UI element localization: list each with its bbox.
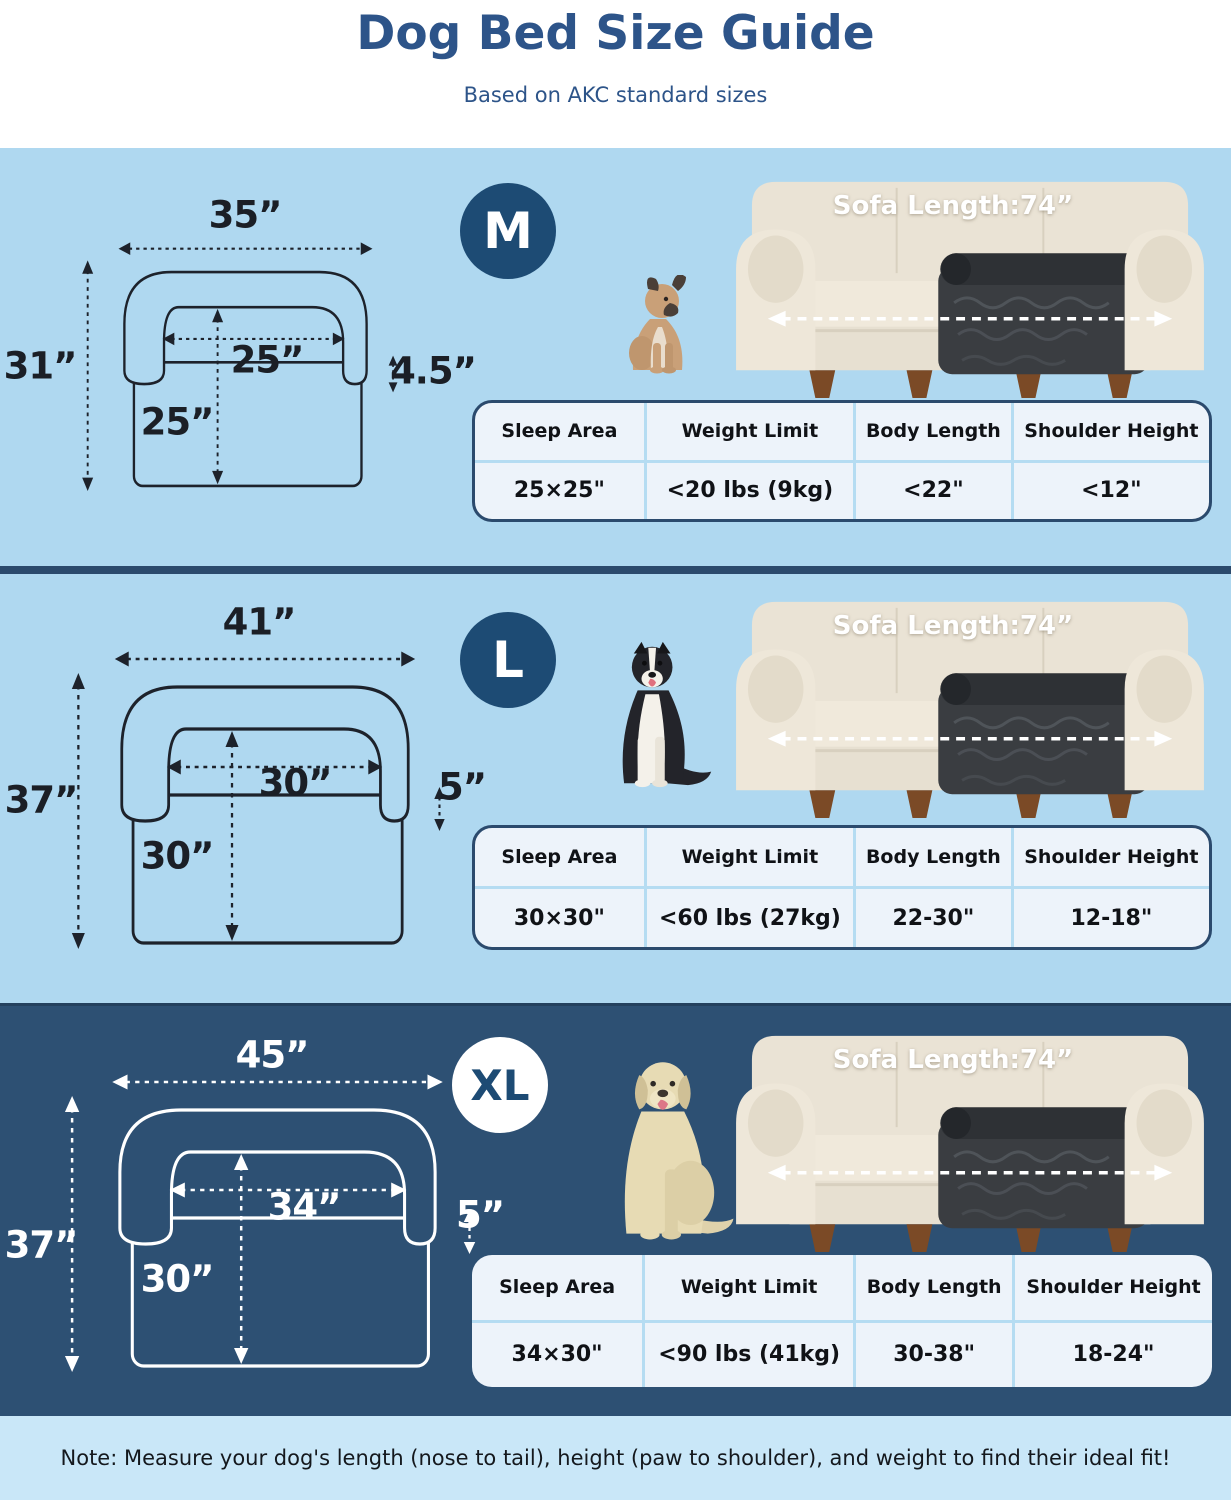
col-header-sleep-area: Sleep Area [472, 1255, 642, 1320]
col-header-sleep-area: Sleep Area [475, 828, 644, 886]
sofa-illustration-xl: Sofa Length:74” [712, 1028, 1228, 1254]
shoulder-height-value: 18-24" [1012, 1323, 1212, 1388]
dim-inner-width-label: 25” [231, 339, 304, 382]
spec-table-l: Sleep Area Weight Limit Body Length Shou… [472, 825, 1212, 950]
col-header-weight-limit: Weight Limit [644, 403, 853, 460]
dim-inner-width-label: 34” [268, 1186, 341, 1229]
dim-width-label: 45” [236, 1034, 309, 1077]
dim-height-label: 37” [5, 1224, 78, 1267]
page-title: Dog Bed Size Guide [0, 6, 1231, 61]
page-subtitle: Based on AKC standard sizes [0, 83, 1231, 107]
dim-bolster-height-label: 5” [438, 766, 486, 809]
sofa-length-label: Sofa Length:74” [833, 611, 1073, 641]
spec-table-header-row: Sleep Area Weight Limit Body Length Shou… [472, 1255, 1212, 1320]
dim-height-label: 31” [4, 345, 77, 388]
size-badge-m: M [460, 183, 556, 279]
col-header-sleep-area: Sleep Area [475, 403, 644, 460]
size-badge-l: L [460, 612, 556, 708]
measurement-note: Note: Measure your dog's length (nose to… [61, 1446, 1171, 1470]
sofa-length-label: Sofa Length:74” [833, 1045, 1073, 1075]
sofa-illustration-m: Sofa Length:74” [712, 174, 1228, 400]
weight-limit-value: <60 lbs (27kg) [644, 889, 853, 947]
spec-table-header-row: Sleep Area Weight Limit Body Length Shou… [475, 403, 1209, 460]
dog-bed-size-guide-infographic: Dog Bed Size Guide Based on AKC standard… [0, 0, 1231, 1500]
section-size-xl: 45” 37” 34” 30” 5” XL [0, 1003, 1231, 1416]
col-header-weight-limit: Weight Limit [642, 1255, 853, 1320]
spec-table-header-row: Sleep Area Weight Limit Body Length Shou… [475, 828, 1209, 886]
dim-inner-width-label: 30” [259, 762, 332, 805]
size-badge-xl: XL [452, 1037, 548, 1133]
dim-height-label: 37” [5, 779, 78, 822]
col-header-body-length: Body Length [853, 403, 1011, 460]
weight-limit-value: <20 lbs (9kg) [644, 463, 853, 520]
col-header-body-length: Body Length [853, 1255, 1012, 1320]
sleep-area-value: 30×30" [475, 889, 644, 947]
header: Dog Bed Size Guide Based on AKC standard… [0, 0, 1231, 148]
dim-inner-height-label: 30” [141, 1258, 214, 1301]
body-length-value: <22" [853, 463, 1011, 520]
col-header-weight-limit: Weight Limit [644, 828, 853, 886]
col-header-shoulder-height: Shoulder Height [1011, 828, 1209, 886]
body-length-value: 22-30" [853, 889, 1011, 947]
section-divider [0, 566, 1231, 574]
size-badge-label: M [483, 202, 533, 260]
spec-table-value-row: 25×25" <20 lbs (9kg) <22" <12" [475, 460, 1209, 520]
dim-bolster-height-label: 5” [456, 1194, 504, 1237]
spec-table-xl: Sleep Area Weight Limit Body Length Shou… [472, 1255, 1212, 1387]
footer: Note: Measure your dog's length (nose to… [0, 1416, 1231, 1500]
dim-inner-height-label: 25” [141, 401, 214, 444]
dim-width-label: 35” [209, 194, 282, 237]
sleep-area-value: 25×25" [475, 463, 644, 520]
dog-illustration-french-bulldog [620, 275, 700, 375]
col-header-shoulder-height: Shoulder Height [1011, 403, 1209, 460]
sofa-length-label: Sofa Length:74” [833, 191, 1073, 221]
dim-width-label: 41” [223, 601, 296, 644]
size-badge-label: XL [470, 1061, 529, 1110]
spec-table-m: Sleep Area Weight Limit Body Length Shou… [472, 400, 1212, 522]
col-header-body-length: Body Length [853, 828, 1011, 886]
sofa-illustration-l: Sofa Length:74” [712, 594, 1228, 820]
section-size-m: 35” 31” 25” 25” 4.5” M [0, 148, 1231, 566]
shoulder-height-value: 12-18" [1011, 889, 1209, 947]
spec-table-value-row: 30×30" <60 lbs (27kg) 22-30" 12-18" [475, 886, 1209, 947]
body-length-value: 30-38" [853, 1323, 1012, 1388]
dim-inner-height-label: 30” [141, 835, 214, 878]
spec-table-value-row: 34×30" <90 lbs (41kg) 30-38" 18-24" [472, 1320, 1212, 1388]
section-size-l: 41” 37” 30” 30” 5” L [0, 574, 1231, 1003]
dim-bolster-height-label: 4.5” [390, 350, 476, 393]
col-header-shoulder-height: Shoulder Height [1012, 1255, 1212, 1320]
shoulder-height-value: <12" [1011, 463, 1209, 520]
sleep-area-value: 34×30" [472, 1323, 642, 1388]
dog-illustration-border-collie [598, 640, 716, 790]
weight-limit-value: <90 lbs (41kg) [642, 1323, 853, 1388]
size-badge-label: L [492, 631, 524, 689]
